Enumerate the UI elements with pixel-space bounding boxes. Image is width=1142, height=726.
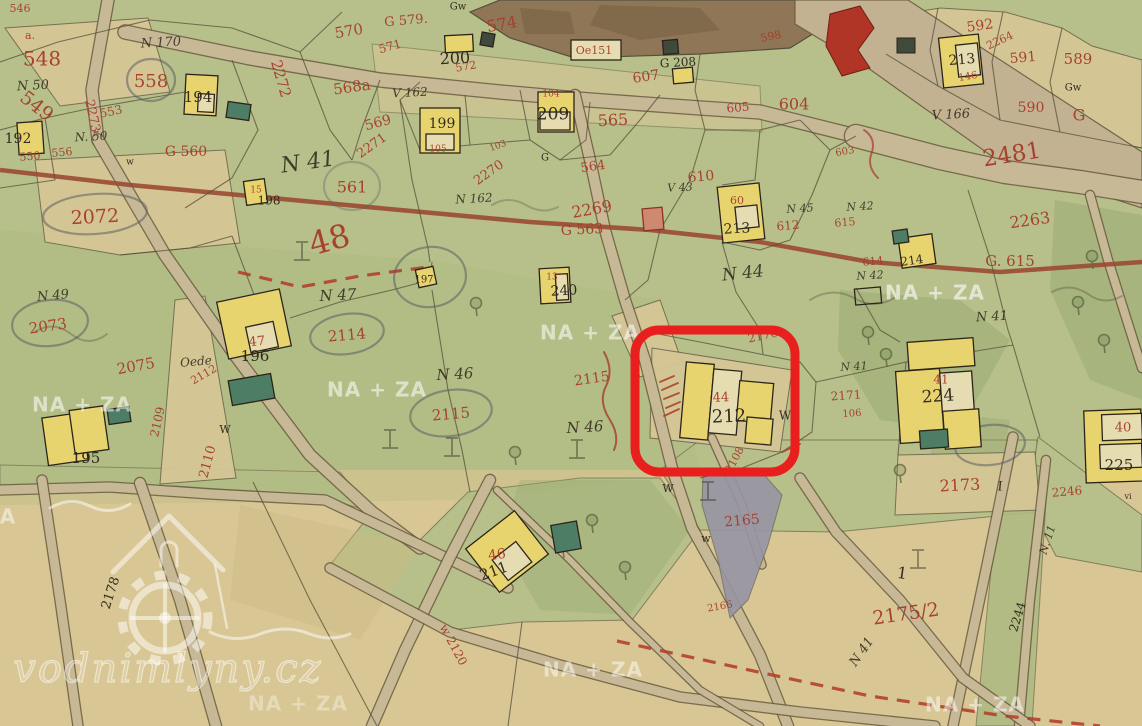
watermark-tag: NA + ZA — [543, 658, 643, 682]
parcel-number: 2072 — [70, 205, 119, 230]
tree-stem — [1092, 261, 1093, 269]
parcel-number: 13 — [546, 273, 558, 283]
house-number: G — [541, 153, 549, 164]
outbuilding — [919, 429, 948, 449]
tree-stem — [868, 337, 869, 345]
house-number: 195 — [72, 449, 101, 467]
house-number: Gw — [1065, 83, 1082, 94]
owner-script-label: N. 50 — [73, 129, 108, 145]
parcel-number: 548 — [23, 47, 61, 71]
parcel-number: 2115 — [431, 403, 471, 424]
parcel-number: 546 — [10, 2, 31, 15]
parcel-number: 106 — [842, 408, 862, 420]
house-number: 213 — [948, 51, 976, 69]
parcel-number: 605 — [726, 100, 750, 116]
brick-outbuilding — [642, 207, 664, 231]
owner-script-label: N 46 — [565, 417, 604, 437]
owner-script-label: N 170 — [139, 34, 181, 51]
house-number: vi — [1123, 492, 1132, 501]
tree-stem — [515, 457, 516, 465]
owner-script-label: N 50 — [16, 78, 50, 95]
outbuilding — [226, 101, 251, 120]
owner-script-label: Oede — [180, 353, 213, 370]
tree-stem — [592, 525, 593, 533]
watermark-tag: NA + ZA — [540, 321, 640, 345]
parcel-number: 589 — [1064, 50, 1093, 68]
parcel-number: 565 — [597, 110, 628, 131]
house-number: W — [779, 409, 792, 423]
tree-crown — [895, 465, 906, 476]
watermark-tag: NA + ZA — [248, 692, 348, 716]
building — [907, 338, 975, 371]
house-number: 197 — [414, 275, 433, 286]
tree-crown — [863, 327, 874, 338]
parcel-number: 604 — [779, 95, 810, 114]
parcel-number: G 563 — [560, 221, 603, 239]
owner-script-label: N 45 — [785, 201, 814, 215]
owner-script-label: N 46 — [435, 364, 474, 384]
parcel-number: 2171 — [830, 387, 861, 403]
tree-stem — [476, 308, 477, 316]
tree-stem — [1078, 307, 1079, 315]
tree-stem — [886, 359, 887, 367]
house-number: 200 — [439, 48, 470, 69]
owner-script-label: V 162 — [392, 85, 428, 101]
tree-crown — [881, 349, 892, 360]
outbuilding — [551, 521, 581, 553]
parcel-number: 590 — [1018, 100, 1045, 116]
parcel-number: 40 — [1115, 421, 1132, 436]
house-number: 194 — [184, 88, 213, 106]
owner-script-label: N 162 — [454, 191, 493, 207]
parcel-number: Oe151 — [576, 44, 613, 57]
building — [745, 417, 773, 445]
map-viewport[interactable]: 546a.548549550556553558G 560561570571G 5… — [0, 0, 1142, 726]
house-number: 192 — [5, 131, 32, 147]
parcel-number: 556 — [51, 145, 73, 160]
house-number: w — [126, 158, 134, 168]
owner-script-label: V 166 — [931, 107, 970, 124]
parcel-number: 615 — [834, 215, 856, 230]
watermark-tag: NA + ZA — [32, 393, 132, 417]
tree-crown — [1087, 251, 1098, 262]
parcel-number: 2114 — [327, 324, 367, 345]
tree-crown — [471, 298, 482, 309]
watermark-tag: NA + ZA — [885, 281, 985, 305]
house-number: Gw — [450, 2, 467, 13]
parcel-number: 2165 — [724, 511, 761, 530]
dark-outbuilding — [897, 38, 915, 53]
tree-stem — [625, 572, 626, 580]
cadastral-map: 546a.548549550556553558G 560561570571G 5… — [0, 0, 1142, 726]
outbuilding — [892, 229, 909, 244]
parcel-number: 44 — [712, 390, 729, 406]
parcel-number: 614 — [862, 254, 884, 269]
owner-script-label: N 41 — [839, 359, 868, 373]
parcel-number: 558 — [134, 71, 168, 92]
tree-crown — [587, 515, 598, 526]
owner-script-label: N 49 — [35, 287, 69, 305]
parcel-number: 104 — [542, 90, 559, 100]
owner-script-label: N 42 — [855, 268, 884, 282]
house-number: 198 — [258, 194, 281, 208]
house-number: 196 — [241, 347, 270, 365]
village-common-shade — [520, 8, 575, 34]
parcel-number: 2246 — [1051, 483, 1083, 500]
watermark-tag: NA + ZA — [925, 693, 1025, 717]
watermark-tag: A — [0, 505, 16, 529]
parcel-number: 105 — [429, 145, 446, 155]
tree-crown — [1099, 335, 1110, 346]
house-number: W — [219, 423, 231, 436]
tree-crown — [1073, 297, 1084, 308]
tree-crown — [510, 447, 521, 458]
parcel-number: 2173 — [939, 474, 981, 495]
watermark-tag: NA + ZA — [327, 378, 427, 402]
watermark-site-text: vodnimlyny.cz — [13, 646, 322, 692]
parcel-number: 591 — [1009, 49, 1037, 67]
owner-script-label: N 47 — [318, 285, 357, 305]
owner-script-label: N 41 — [975, 309, 1009, 326]
house-number: G 208 — [659, 55, 696, 71]
parcel-number: a. — [25, 29, 35, 42]
parcel-number: 612 — [776, 218, 800, 234]
parcel-number: 561 — [337, 178, 368, 197]
tree-crown — [620, 562, 631, 573]
parcel-number: G. 615 — [985, 252, 1035, 270]
house-number: 225 — [1105, 456, 1134, 474]
tree-stem — [1104, 345, 1105, 353]
house-number: 240 — [550, 282, 578, 299]
parcel-number: G — [1073, 106, 1086, 125]
house-number: 209 — [537, 105, 569, 125]
owner-script-label: N 42 — [845, 199, 874, 213]
building — [662, 39, 678, 54]
building — [672, 67, 693, 84]
house-number: W — [662, 482, 674, 495]
parcel-number: 550 — [19, 149, 41, 164]
parcel-number: 41 — [933, 373, 948, 387]
tree-stem — [900, 475, 901, 483]
house-number: 213 — [723, 220, 751, 237]
parcel-number: G 560 — [165, 144, 207, 160]
house-number: 212 — [711, 405, 746, 427]
owner-script-label: V 43 — [667, 180, 693, 194]
house-number: 199 — [429, 116, 456, 132]
parcel-number: 60 — [730, 194, 744, 207]
house-number: 224 — [921, 385, 955, 407]
house-number: w — [701, 532, 711, 545]
